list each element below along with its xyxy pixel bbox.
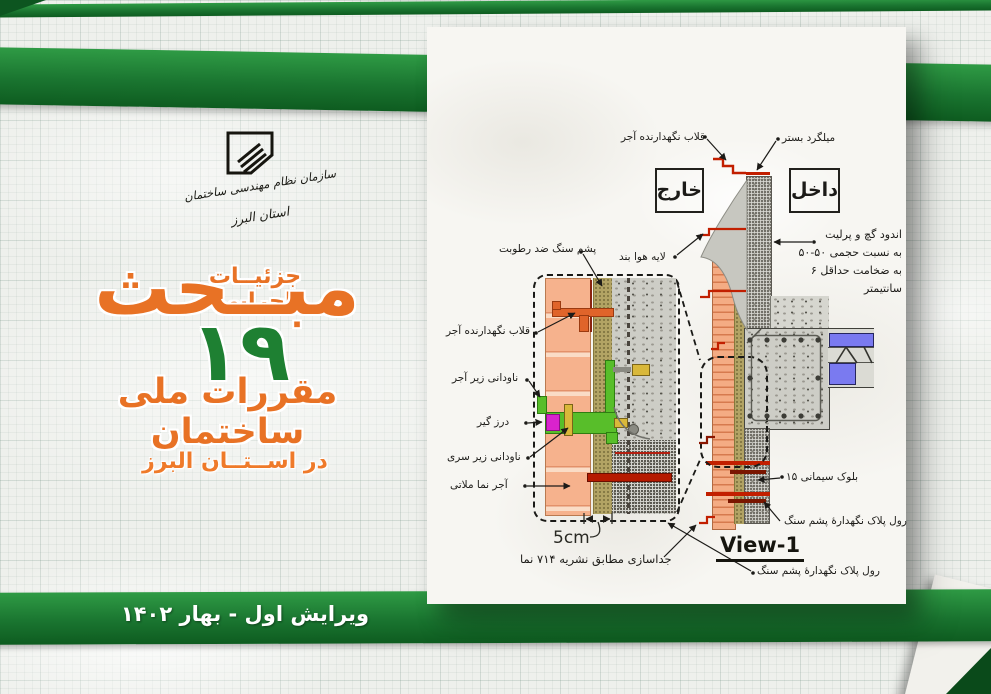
label-bed-rebar: میلگرد بستر (782, 132, 835, 144)
plaster-note-line3: به ضخامت حداقل ۶ سانتیمتر (770, 262, 902, 298)
label-rockwool-moisture: پشم سنگ ضد رطوبت (499, 243, 596, 255)
label-brick-hook-top: قلاب نگهدارنده آجر (621, 131, 705, 143)
air-seal-flashing (701, 180, 747, 330)
label-air-seal: لایه هوا بند (619, 251, 666, 263)
plaster-note: اندود گچ و پرلیت به نسبت حجمی ۵۰-۵۰ به ض… (770, 226, 902, 298)
label-channel-under-head: ناودانی زیر سری (447, 451, 521, 463)
label-rockwool-plate-upper: رول پلاک نگهدارهٔ پشم سنگ (784, 515, 907, 527)
dimension-5cm: 5cm (553, 528, 590, 548)
label-brick-hook-detail: قلاب نگهدارنده آجر (446, 325, 530, 337)
label-interior-box: داخل (789, 168, 840, 213)
leader-lines-overlay (0, 0, 991, 694)
plaster-note-line1: اندود گچ و پرلیت (770, 226, 902, 244)
label-face-brick: آجر نما ملاتی (450, 479, 508, 491)
poster-canvas: سازمان نظام مهندسی ساختمان استان البرز ج… (0, 0, 991, 694)
label-separation-note: جداسازی مطابق نشریه ۷۱۴ نما (520, 552, 672, 566)
view-name-label: View-1 (716, 533, 804, 562)
label-cement-block: بلوک سیمانی ۱۵ (786, 471, 858, 483)
label-joint-seal: درز گیر (477, 416, 509, 428)
label-rockwool-plate-lower: رول پلاک نگهدارهٔ پشم سنگ (757, 565, 880, 577)
label-channel-under-brick: ناودانی زیر آجر (452, 372, 518, 384)
technical-drawing: قلاب نگهدارنده آجر میلگرد بستر خارج داخل… (0, 0, 991, 694)
label-exterior-box: خارج (655, 168, 704, 213)
plaster-note-line2: به نسبت حجمی ۵۰-۵۰ (770, 244, 902, 262)
